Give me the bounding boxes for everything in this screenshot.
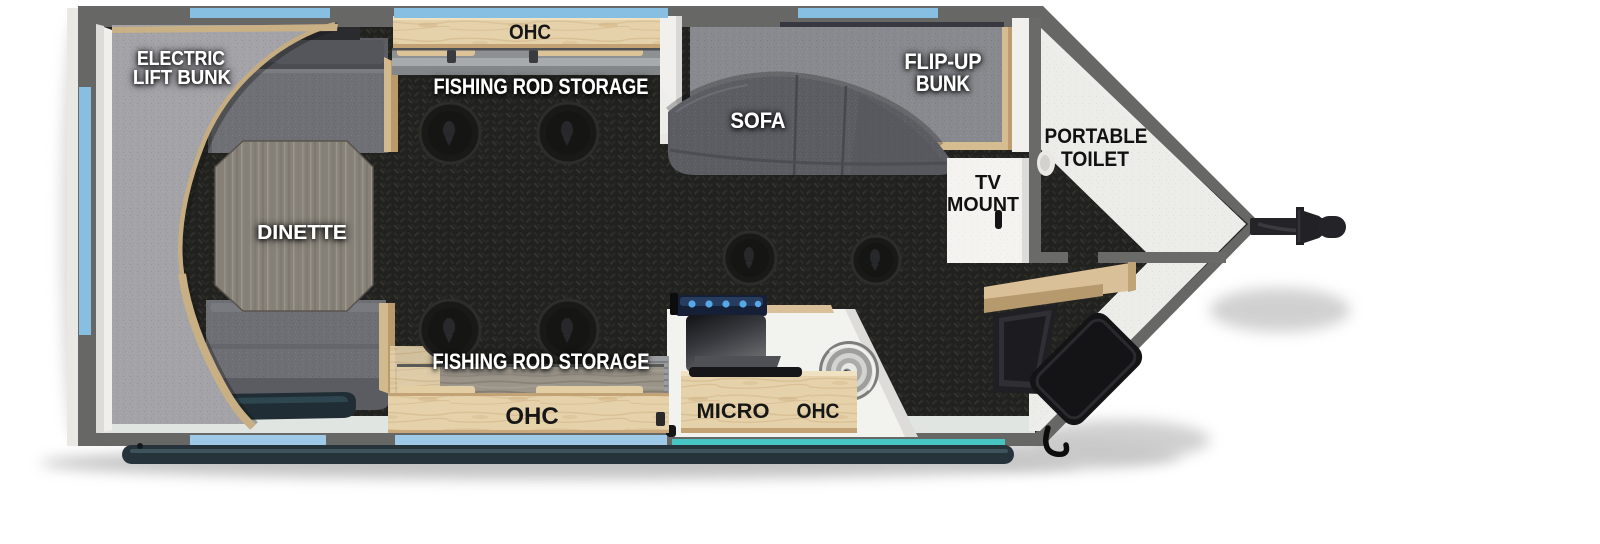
svg-text:FISHING ROD STORAGE: FISHING ROD STORAGE xyxy=(432,351,649,375)
svg-text:BUNK: BUNK xyxy=(916,73,970,97)
svg-text:PORTABLE: PORTABLE xyxy=(1045,125,1148,148)
svg-text:TV: TV xyxy=(975,172,1002,194)
svg-text:ELECTRIC: ELECTRIC xyxy=(137,47,225,69)
svg-text:LIFT BUNK: LIFT BUNK xyxy=(133,67,231,89)
svg-text:OHC: OHC xyxy=(505,403,558,430)
svg-text:MICRO: MICRO xyxy=(697,399,770,422)
svg-text:SOFA: SOFA xyxy=(731,109,786,133)
svg-text:FLIP-UP: FLIP-UP xyxy=(905,50,982,74)
svg-text:MOUNT: MOUNT xyxy=(947,194,1019,216)
svg-text:OHC: OHC xyxy=(509,21,551,44)
svg-text:TOILET: TOILET xyxy=(1061,148,1130,171)
svg-text:OHC: OHC xyxy=(797,400,840,423)
svg-text:FISHING ROD STORAGE: FISHING ROD STORAGE xyxy=(434,76,649,100)
svg-text:DINETTE: DINETTE xyxy=(257,221,347,243)
